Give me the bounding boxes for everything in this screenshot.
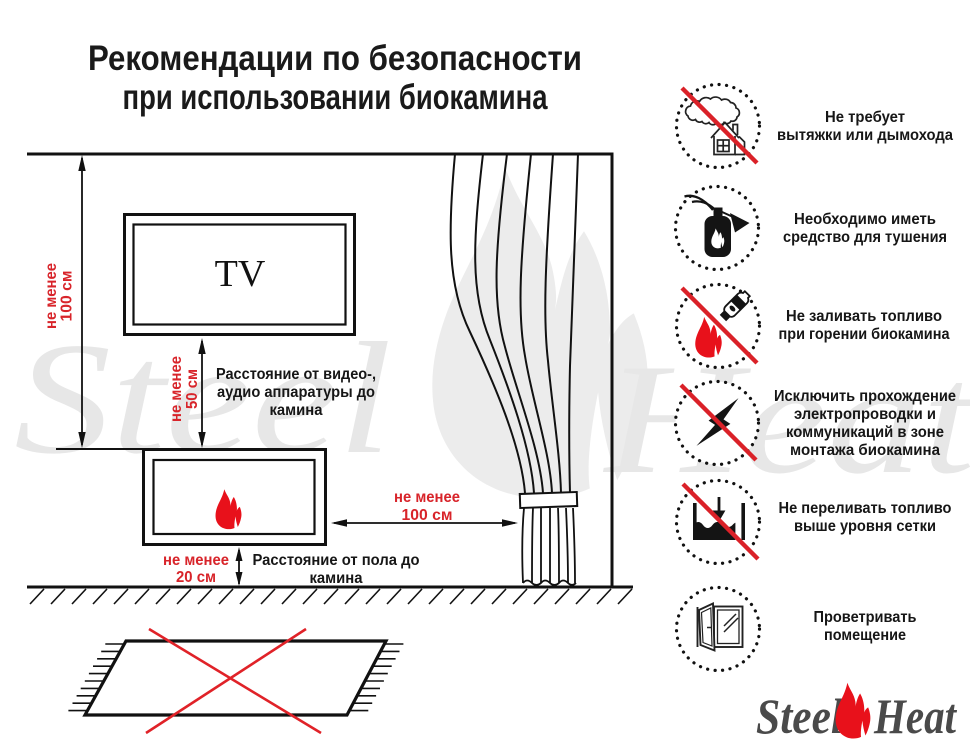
svg-text:Не требуетвытяжки или дымохода: Не требуетвытяжки или дымохода bbox=[777, 109, 953, 144]
svg-text:не менее100 см: не менее100 см bbox=[394, 489, 460, 524]
svg-text:Необходимо иметьсредство для т: Необходимо иметьсредство для тушения bbox=[783, 211, 947, 246]
svg-text:TV: TV bbox=[215, 253, 266, 295]
svg-text:Не переливать топливовыше уров: Не переливать топливовыше уровня сетки bbox=[779, 500, 952, 535]
svg-text:Исключить прохождениеэлектропр: Исключить прохождениеэлектропроводки ико… bbox=[774, 388, 956, 459]
svg-text:Не заливать топливопри горении: Не заливать топливопри горении биокамина bbox=[779, 308, 950, 343]
svg-text:при использовании биокамина: при использовании биокамина bbox=[123, 78, 548, 117]
svg-text:не менее20 см: не менее20 см bbox=[163, 552, 229, 586]
svg-text:Steel: Steel bbox=[756, 688, 843, 744]
svg-text:не менее100 см: не менее100 см bbox=[43, 263, 76, 329]
svg-text:Расстояние от пола докамина: Расстояние от пола докамина bbox=[253, 552, 420, 587]
svg-text:Проветриватьпомещение: Проветриватьпомещение bbox=[814, 609, 917, 644]
svg-text:Heat: Heat bbox=[873, 688, 958, 744]
svg-text:Рекомендации по безопасности: Рекомендации по безопасности bbox=[88, 39, 582, 78]
